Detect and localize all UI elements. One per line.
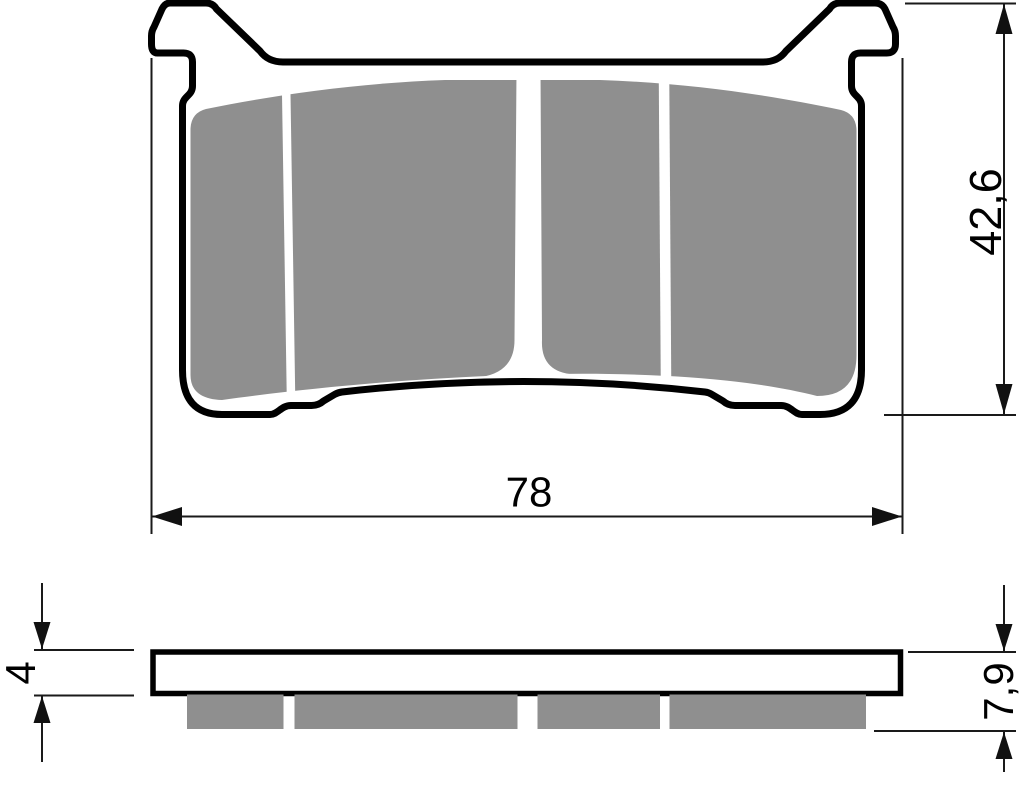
svg-text:4: 4 <box>0 661 44 684</box>
svg-text:78: 78 <box>506 469 553 516</box>
svg-text:7,9: 7,9 <box>975 662 1022 720</box>
svg-text:42,6: 42,6 <box>960 168 1011 256</box>
